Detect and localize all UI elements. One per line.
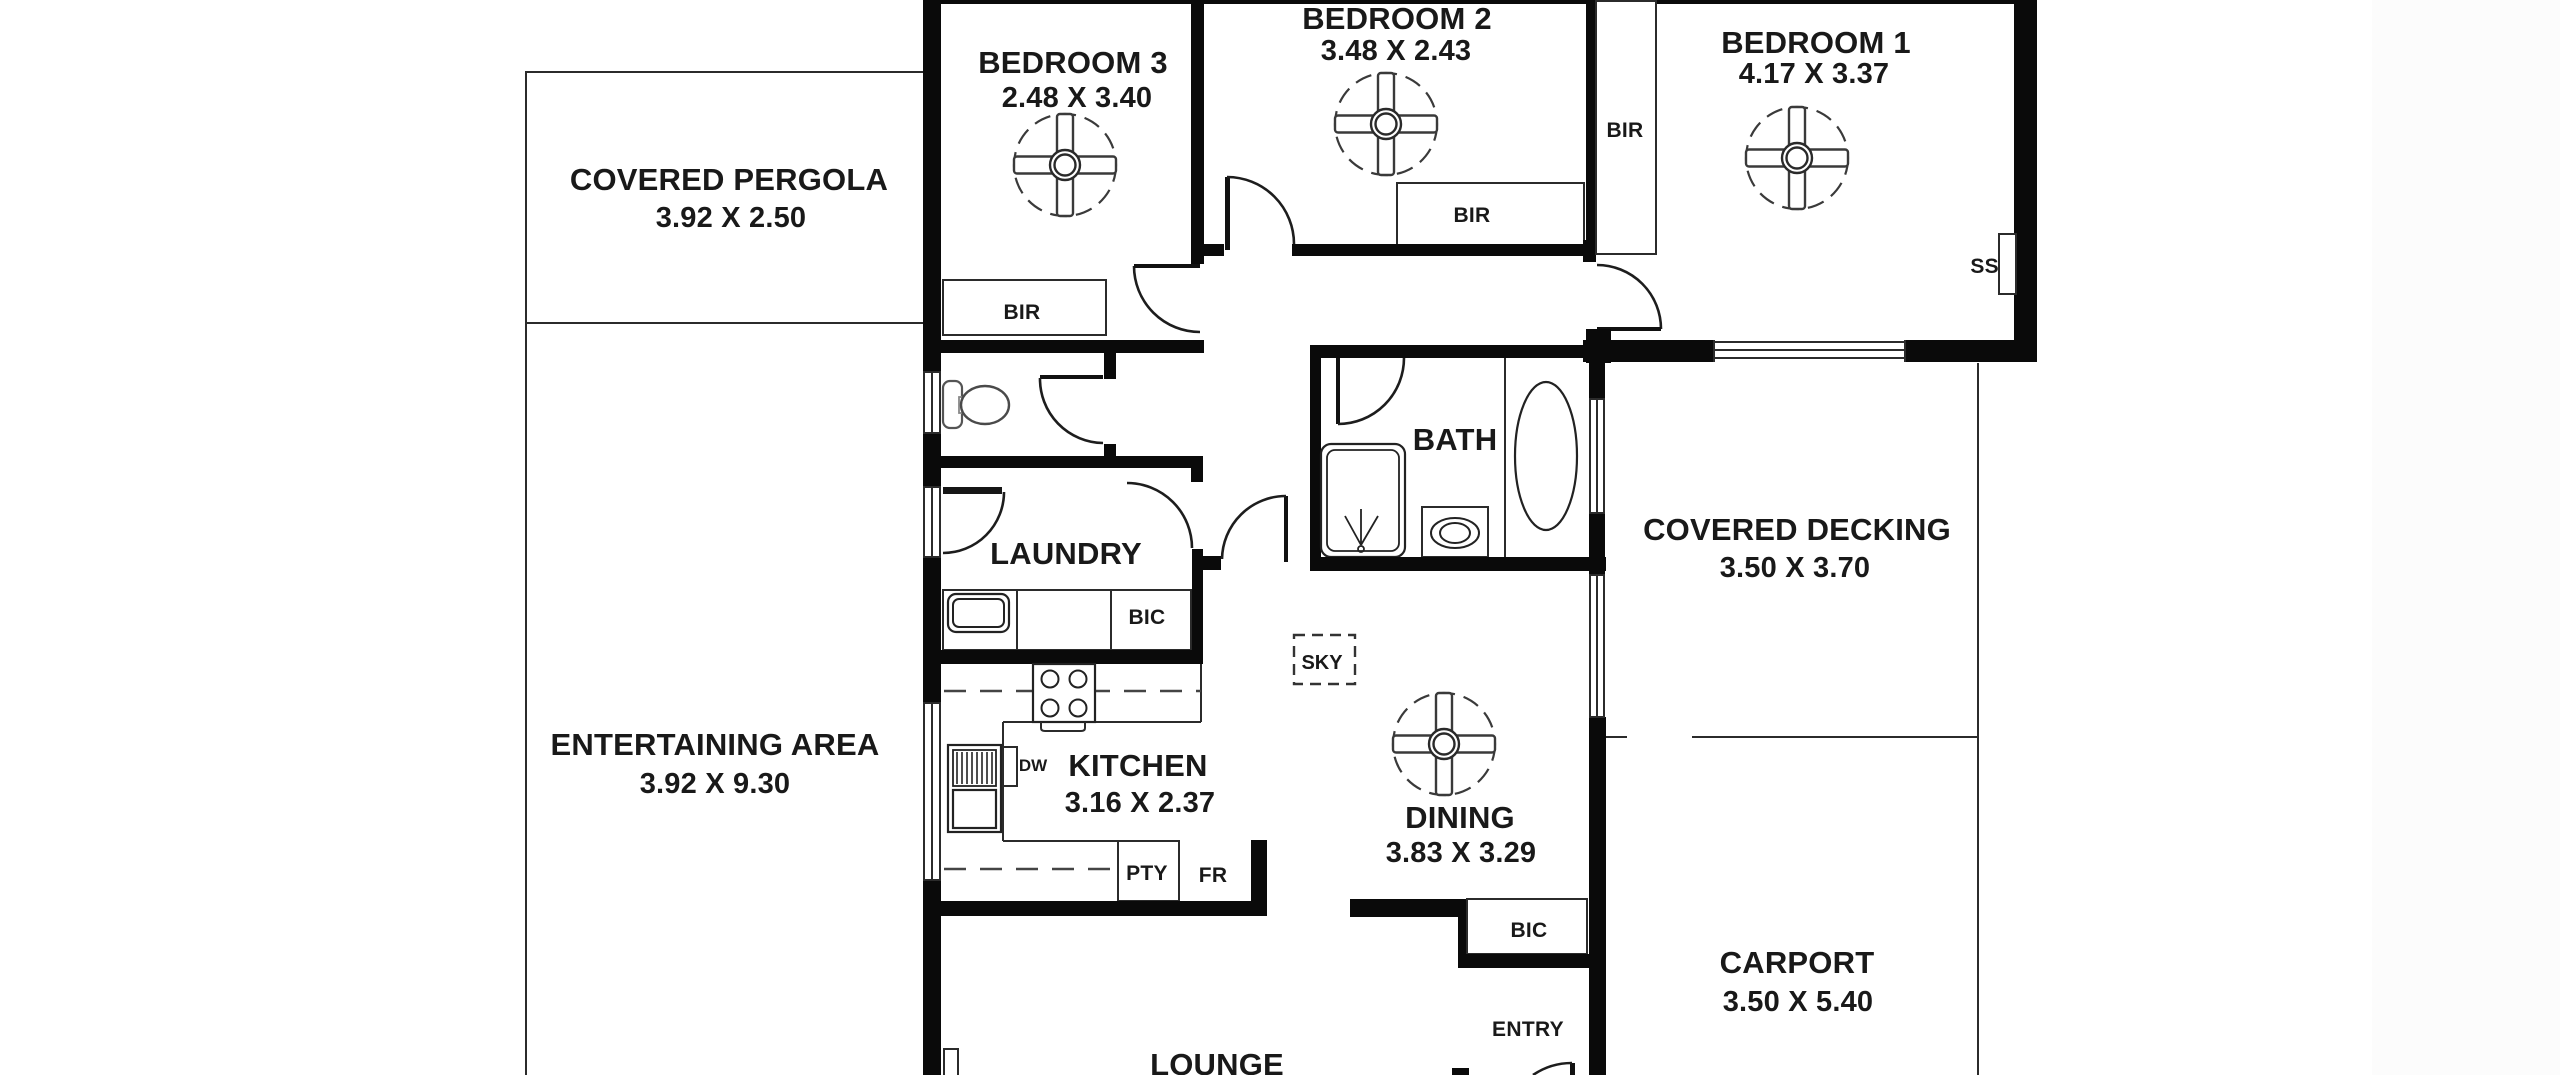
svg-text:BIC: BIC <box>1128 606 1165 629</box>
svg-text:BIC: BIC <box>1510 919 1547 942</box>
svg-text:LOUNGE: LOUNGE <box>1150 1047 1284 1075</box>
svg-text:SS: SS <box>1970 255 1999 278</box>
svg-text:COVERED DECKING: COVERED DECKING <box>1643 512 1951 547</box>
svg-text:BIR: BIR <box>1003 301 1040 324</box>
svg-text:3.92 X 9.30: 3.92 X 9.30 <box>640 768 791 800</box>
svg-text:3.50 X 3.70: 3.50 X 3.70 <box>1720 552 1871 584</box>
svg-text:COVERED PERGOLA: COVERED PERGOLA <box>570 162 888 197</box>
svg-text:KITCHEN: KITCHEN <box>1068 748 1207 783</box>
svg-text:BEDROOM 1: BEDROOM 1 <box>1721 25 1911 60</box>
svg-text:BEDROOM 2: BEDROOM 2 <box>1302 1 1492 36</box>
svg-text:3.50 X 5.40: 3.50 X 5.40 <box>1723 986 1874 1018</box>
svg-text:ENTRY: ENTRY <box>1492 1018 1564 1041</box>
svg-text:BEDROOM 3: BEDROOM 3 <box>978 45 1168 80</box>
svg-text:BIR: BIR <box>1606 119 1643 142</box>
svg-text:DW: DW <box>1019 756 1048 775</box>
svg-text:2.48 X 3.40: 2.48 X 3.40 <box>1002 82 1153 114</box>
svg-text:BATH: BATH <box>1413 422 1498 457</box>
svg-text:CARPORT: CARPORT <box>1720 945 1875 980</box>
svg-text:FR: FR <box>1199 864 1228 887</box>
svg-text:3.48 X 2.43: 3.48 X 2.43 <box>1321 35 1472 67</box>
svg-text:PTY: PTY <box>1126 862 1168 885</box>
svg-text:ENTERTAINING AREA: ENTERTAINING AREA <box>551 727 880 762</box>
svg-text:LAUNDRY: LAUNDRY <box>990 536 1142 571</box>
svg-text:3.92 X 2.50: 3.92 X 2.50 <box>656 202 807 234</box>
svg-text:3.83 X 3.29: 3.83 X 3.29 <box>1386 837 1537 869</box>
svg-text:SKY: SKY <box>1301 652 1343 674</box>
svg-text:3.16 X 2.37: 3.16 X 2.37 <box>1065 787 1216 819</box>
svg-text:DINING: DINING <box>1405 800 1515 835</box>
svg-text:BIR: BIR <box>1453 204 1490 227</box>
svg-text:4.17 X 3.37: 4.17 X 3.37 <box>1739 58 1890 90</box>
